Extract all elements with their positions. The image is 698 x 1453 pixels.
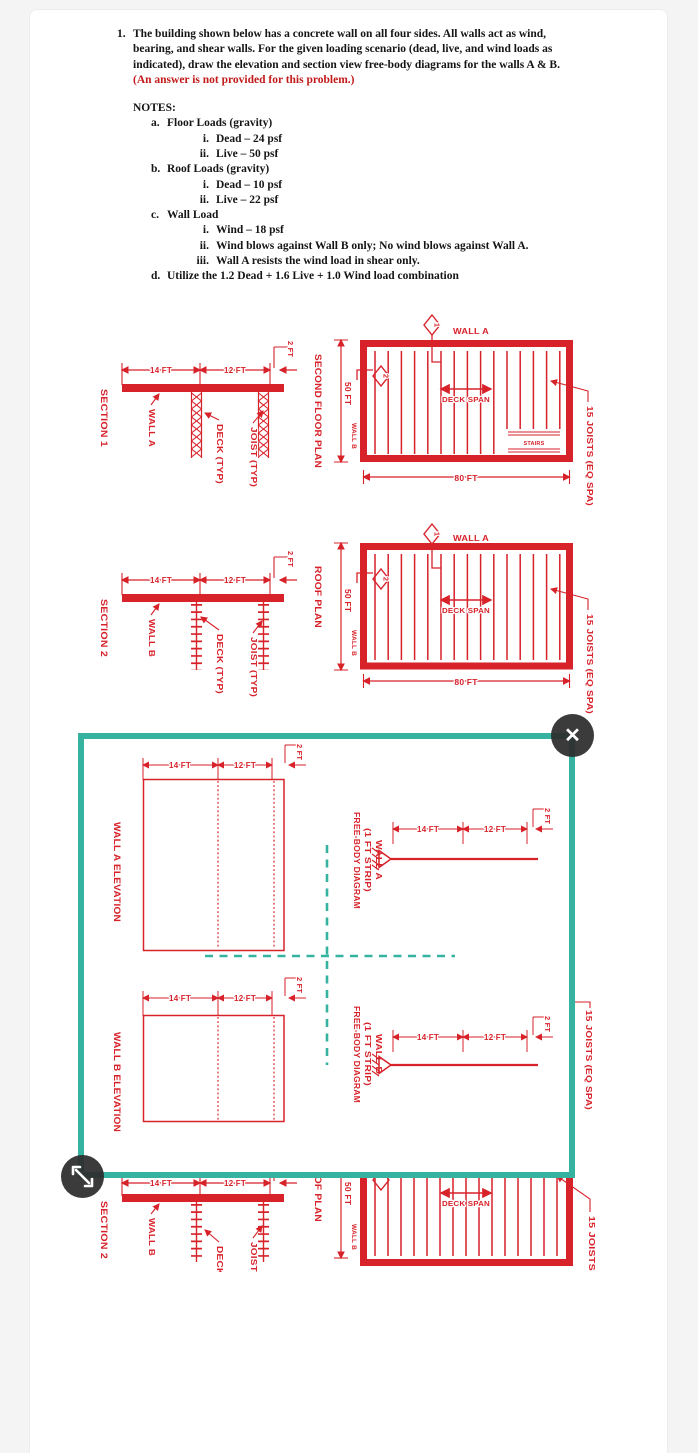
deck-typ-label: DECK (TYP) xyxy=(215,634,225,694)
dim-14ft: 14 FT xyxy=(150,366,172,375)
note-a: a.Floor Loads (gravity) xyxy=(151,116,579,131)
joists-note: 15 JOISTS (EQ SPA) xyxy=(585,406,595,506)
section-marker-2: 2 xyxy=(382,577,391,581)
wall-b-elevation-title: WALL B ELEVATION xyxy=(112,1032,122,1132)
note-c-iii: iii.Wall A resists the wind load in shea… xyxy=(189,254,579,269)
notes-title: NOTES: xyxy=(133,101,579,116)
wall-b-label: WALL B xyxy=(147,619,157,657)
deck-span-label: DECK SPAN xyxy=(442,395,490,404)
dim-2ft: 2 FT xyxy=(295,744,304,760)
dim-12ft: 12 FT xyxy=(484,825,506,834)
joist-typ-label: JOIST (TYP) xyxy=(249,637,259,697)
note-b-i: i.Dead – 10 psf xyxy=(189,178,579,193)
dim-12ft: 12 FT xyxy=(224,366,246,375)
wall-b-plan-label: WALL B xyxy=(350,630,357,656)
stairs-label: STAIRS xyxy=(524,441,545,447)
dim-14ft: 14 FT xyxy=(417,825,439,834)
second-floor-plan-title: SECOND FLOOR PLAN xyxy=(312,354,323,468)
fbd-title: FREE-BODY DIAGRAM xyxy=(352,812,361,909)
dim-12ft: 12 FT xyxy=(484,1033,506,1042)
section-marker-1: 1 xyxy=(433,323,442,327)
fbd-wall-a-drawing: FREE-BODY DIAGRAM (1 FT STRIP) WALL A 14… xyxy=(352,808,553,909)
dim-14ft: 14 FT xyxy=(150,1179,172,1188)
section-2-title: SECTION 2 xyxy=(99,1201,109,1259)
wall-a-elevation-title: WALL A ELEVATION xyxy=(112,822,122,922)
deck-span-label: DECK SPAN xyxy=(442,606,490,615)
slab-section xyxy=(122,384,284,392)
problem-text-block: 1. The building shown below has a concre… xyxy=(117,27,579,285)
dim-14ft: 14 FT xyxy=(169,761,191,770)
joists-note: 15 JOISTS (EQ SPA) xyxy=(585,614,595,714)
wall-b-plan-label: WALL B xyxy=(350,423,357,449)
section-2-drawing: SECTION 2 14 FT 12 FT 2 FT WALL B DECK (… xyxy=(99,551,323,697)
dim-12ft: 12 FT xyxy=(234,994,256,1003)
fbd-strip: (1 FT STRIP) xyxy=(363,828,372,892)
roof-slab-section xyxy=(122,594,284,602)
note-c: c.Wall Load xyxy=(151,208,579,223)
fbd-title: FREE-BODY DIAGRAM xyxy=(352,1006,361,1103)
note-c-i: i.Wind – 18 psf xyxy=(189,223,579,238)
dim-14ft: 14 FT xyxy=(169,994,191,1003)
dim-14ft: 14 FT xyxy=(150,576,172,585)
note-c-ii: ii.Wind blows against Wall B only; No wi… xyxy=(189,239,579,254)
section-1-title: SECTION 1 xyxy=(99,389,109,447)
problem-statement-red: (An answer is not provided for this prob… xyxy=(133,74,355,86)
dim-80ft: 80 FT xyxy=(454,473,478,483)
dim-50ft: 50 FT xyxy=(343,1182,353,1206)
dim-50ft: 50 FT xyxy=(343,589,353,613)
dim-14ft: 14 FT xyxy=(417,1033,439,1042)
note-b: b.Roof Loads (gravity) xyxy=(151,162,579,177)
overlay-drawings: 14 FT 12 FT 2 FT WALL A ELEVATION FREE-B… xyxy=(84,739,569,1172)
fbd-wall-b-drawing: FREE-BODY DIAGRAM (1 FT STRIP) WALL B 14… xyxy=(352,1006,553,1103)
wall-a-elevation-drawing: 14 FT 12 FT 2 FT WALL A ELEVATION xyxy=(112,744,306,951)
deck-span-label: DECK SPAN xyxy=(442,1199,490,1208)
problem-statement: 1. The building shown below has a concre… xyxy=(117,27,579,88)
roof-plan-title: ROOF PLAN xyxy=(312,566,323,628)
deck-typ-label: DECK (TYP) xyxy=(215,1246,225,1306)
deck-typ-label: DECK (TYP) xyxy=(215,424,225,484)
section-2-title: SECTION 2 xyxy=(99,599,109,657)
dim-2ft: 2 FT xyxy=(286,341,295,357)
wall-b-elevation-drawing: 14 FT 12 FT 2 FT WALL B ELEVATION xyxy=(112,977,306,1132)
roof-slab-section xyxy=(122,1194,284,1202)
problem-number: 1. xyxy=(117,27,133,88)
joist-typ-label: JOIST (TYP) xyxy=(249,427,259,487)
crop-overlay-frame[interactable]: 14 FT 12 FT 2 FT WALL A ELEVATION FREE-B… xyxy=(78,733,575,1178)
page: 1. The building shown below has a concre… xyxy=(0,0,698,1453)
wall-a-plan-label: WALL A xyxy=(453,327,489,336)
dim-12ft: 12 FT xyxy=(224,1179,246,1188)
wall-b-plan-label: WALL B xyxy=(350,1224,357,1250)
section-marker-1: 1 xyxy=(433,532,442,536)
note-a-i: i.Dead – 24 psf xyxy=(189,132,579,147)
dim-12ft: 12 FT xyxy=(224,576,246,585)
close-button[interactable]: ✕ xyxy=(551,714,594,757)
fbd-strip: (1 FT STRIP) xyxy=(363,1022,372,1086)
wall-a-plan-label: WALL A xyxy=(453,534,489,543)
dim-2ft: 2 FT xyxy=(286,551,295,567)
resize-diagonal-icon xyxy=(61,1155,104,1198)
section-1-drawing: SECTION 1 14 FT 12 FT 2 FT WALL A DECK (… xyxy=(99,341,323,487)
dim-2ft: 2 FT xyxy=(295,977,304,993)
dim-80ft: 80 FT xyxy=(454,677,478,687)
dim-12ft: 12 FT xyxy=(234,761,256,770)
joists-note: 15 JOISTS (EQ SPA) xyxy=(584,1010,594,1110)
second-floor-plan-drawing: STAIRS WALL A 1 2 DECK SPAN WALL B 50 FT… xyxy=(334,315,595,506)
joists-note-beside-overlay: 15 JOISTS (EQ SPA) xyxy=(573,1002,594,1110)
problem-statement-text: The building shown below has a concrete … xyxy=(133,27,579,88)
joists-note-short: 15 JOISTS xyxy=(587,1216,597,1271)
note-d: d.Utilize the 1.2 Dead + 1.6 Live + 1.0 … xyxy=(151,269,579,284)
close-icon: ✕ xyxy=(564,723,581,748)
resize-button[interactable] xyxy=(61,1155,104,1198)
dim-2ft: 2 FT xyxy=(543,808,552,824)
note-a-ii: ii.Live – 50 psf xyxy=(189,147,579,162)
dim-2ft: 2 FT xyxy=(543,1016,552,1032)
wall-a-label: WALL A xyxy=(147,409,157,447)
notes-block: NOTES: a.Floor Loads (gravity) i.Dead – … xyxy=(133,101,579,284)
section-marker-2: 2 xyxy=(382,374,391,378)
note-b-ii: ii.Live – 22 psf xyxy=(189,193,579,208)
dim-50ft: 50 FT xyxy=(343,382,353,406)
joist-typ-label: JOIST (TYP) xyxy=(249,1242,259,1302)
crosshair-guides xyxy=(205,845,455,1065)
roof-plan-drawing: WALL A 1 2 DECK SPAN WALL B 50 FT 80 FT … xyxy=(334,524,595,714)
wall-b-label: WALL B xyxy=(147,1218,157,1256)
